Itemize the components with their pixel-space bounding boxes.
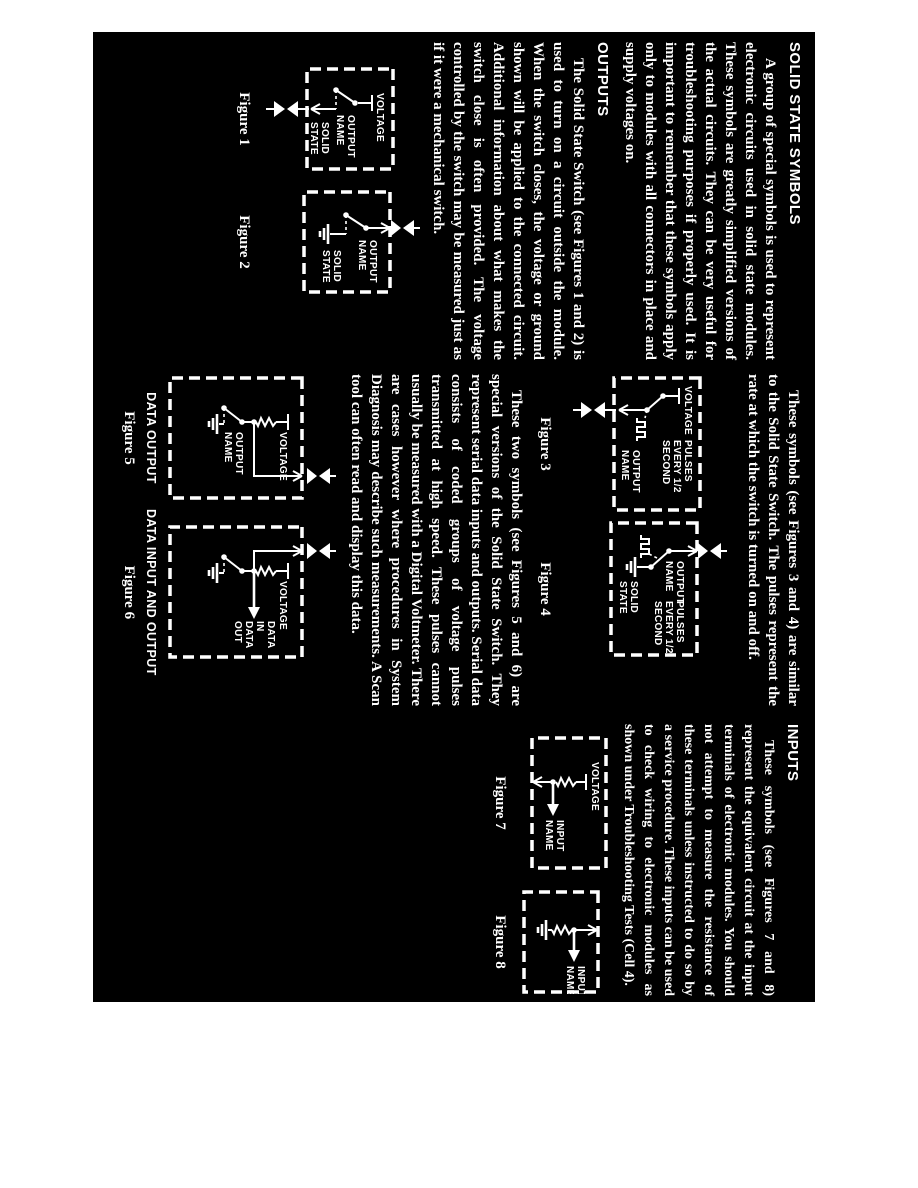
solid-state-label: SOLID [331, 250, 342, 282]
svg-text:IN: IN [254, 621, 265, 632]
output-name-label: OUTPUT [630, 450, 641, 493]
pulse-icon [641, 535, 657, 558]
voltage-label: VOLTAGE [682, 386, 693, 435]
svg-text:EVERY 1/2: EVERY 1/2 [663, 601, 674, 654]
connector-icon [698, 543, 727, 559]
svg-text:SECOND: SECOND [660, 440, 671, 485]
svg-text:NAME: NAME [619, 450, 630, 481]
svg-text:EVERY 1/2: EVERY 1/2 [671, 440, 682, 493]
data-out-label: DATA [243, 621, 254, 649]
switch-icon [343, 212, 369, 234]
resistor-icon [256, 418, 276, 426]
ground-icon [320, 224, 328, 244]
connector-icon [307, 543, 336, 559]
data-arrow-icon [568, 930, 580, 962]
ground-icon [627, 557, 635, 577]
figure-3-caption: Figure 3 [536, 417, 553, 470]
figure-row-1-2: VOLTAGE [235, 67, 422, 360]
intro-paragraph: A group of special symbols is used to re… [620, 42, 780, 360]
outputs-heading: OUTPUTS [594, 42, 611, 360]
figure-5-caption: Figure 5 [120, 411, 137, 464]
figure-5: VOLTAGE [120, 376, 338, 500]
column-1: SOLID STATE SYMBOLS A group of special s… [235, 42, 803, 360]
switch-icon [221, 405, 245, 425]
ground-icon [209, 414, 224, 434]
svg-text:NAME: NAME [356, 240, 367, 271]
voltage-terminal-icon [276, 414, 288, 430]
voltage-terminal-icon [276, 563, 288, 579]
voltage-label: VOLTAGE [277, 432, 288, 481]
figure-6-title: DATA INPUT AND OUTPUT [144, 509, 158, 676]
resistor-icon [552, 926, 572, 934]
voltage-terminal-icon [576, 774, 586, 790]
pulses-label: PULSES [674, 601, 685, 643]
voltage-terminal-icon [660, 388, 679, 404]
data-arrow-icon [248, 571, 260, 619]
input-name-label: INPUT [575, 966, 586, 994]
svg-text:STATE: STATE [308, 122, 319, 155]
figure-5-title: DATA OUTPUT [144, 392, 158, 484]
outputs-paragraph: The Solid State Switch (see Figures 1 an… [428, 42, 588, 360]
figure-2-diagram: OUTPUT NAME SOLID STATE [260, 190, 422, 294]
input-name-label: INPUT [554, 820, 565, 852]
voltage-label: VOLTAGE [277, 581, 288, 630]
figure-8-caption: Figure 8 [491, 915, 508, 968]
figure-7-caption: Figure 7 [491, 776, 508, 829]
figure-4: OUTPUT NAME PULSES EVERY 1/2 SECOND [536, 521, 729, 657]
figure-4-diagram: OUTPUT NAME PULSES EVERY 1/2 SECOND [561, 521, 729, 657]
connector-icon [266, 101, 309, 117]
page-title: SOLID STATE SYMBOLS [786, 42, 803, 360]
switch-icon [221, 555, 245, 575]
output-name-label: OUTPUT [345, 115, 356, 158]
svg-text:SECOND: SECOND [652, 601, 663, 646]
connector-icon [573, 402, 616, 418]
figure-1-diagram: VOLTAGE [260, 67, 422, 171]
figure-row-5-6: VOLTAGE [120, 376, 338, 706]
rotated-content: SOLID STATE SYMBOLS A group of special s… [93, 32, 815, 1002]
module-box [524, 892, 598, 992]
figure-8-diagram: INPUT NAME [516, 890, 608, 994]
solid-state-label: SOLID [628, 581, 639, 613]
voltage-terminal-icon [352, 95, 372, 111]
switch-icon [333, 87, 355, 109]
figure-2: OUTPUT NAME SOLID STATE Figure 2 [235, 190, 422, 294]
output-name-label: OUTPUT [367, 240, 378, 283]
output-name-label: OUTPUT [674, 561, 685, 604]
data-in-label: DATA [265, 621, 276, 649]
figure-7-diagram: VOLTAGE [516, 736, 608, 870]
figure-5-diagram: VOLTAGE [166, 376, 338, 500]
svg-text:NAME: NAME [222, 432, 233, 463]
serial-data-paragraph: These two symbols (see Figures 5 and 6) … [346, 374, 526, 706]
figure-4-caption: Figure 4 [536, 562, 553, 615]
svg-text:NAME: NAME [543, 820, 554, 851]
svg-text:OUT: OUT [232, 621, 243, 643]
figure-row-3-4: VOLTAGE PULSES EVERY 1/2 SECOND [536, 376, 729, 706]
svg-text:NAME: NAME [564, 966, 575, 994]
output-name-label: OUTPUT [233, 432, 244, 475]
voltage-label: VOLTAGE [374, 93, 385, 142]
pulses-label: PULSES [682, 440, 693, 482]
pulse-icon [637, 410, 647, 441]
connector-icon [307, 468, 336, 484]
inputs-paragraph: These symbols (see Figures 7 and 8) repr… [618, 724, 778, 996]
solid-state-label: SOLID [319, 122, 330, 154]
figure-8: INPUT NAME Figure 8 [491, 890, 608, 994]
figure-7: VOLTAGE [491, 736, 608, 870]
figure-1-caption: Figure 1 [235, 92, 252, 145]
figure-6-caption: Figure 6 [120, 566, 137, 619]
resistor-icon [256, 567, 276, 575]
figure-2-caption: Figure 2 [235, 215, 252, 268]
resistor-icon [556, 778, 576, 786]
ground-icon [209, 563, 224, 583]
figure-6: VOLTAGE DATA IN DATA OUT [120, 509, 338, 676]
column-3: INPUTS These symbols (see Figures 7 and … [491, 724, 801, 996]
inputs-heading: INPUTS [784, 724, 801, 996]
voltage-label: VOLTAGE [589, 762, 600, 811]
pulses-paragraph: These symbols (see Figures 3 and 4) are … [743, 374, 803, 706]
ground-icon [538, 920, 552, 940]
column-2: These symbols (see Figures 3 and 4) are … [120, 374, 803, 706]
scanned-page: SOLID STATE SYMBOLS A group of special s… [0, 0, 918, 1188]
svg-text:STATE: STATE [320, 250, 331, 283]
scan-black-area: SOLID STATE SYMBOLS A group of special s… [93, 32, 815, 1002]
figure-3: VOLTAGE PULSES EVERY 1/2 SECOND [536, 376, 729, 512]
svg-text:NAME: NAME [663, 561, 674, 592]
svg-text:NAME: NAME [334, 115, 345, 146]
figure-3-diagram: VOLTAGE PULSES EVERY 1/2 SECOND [561, 376, 729, 512]
figure-1: VOLTAGE [235, 67, 422, 171]
figure-row-7-8: VOLTAGE [491, 736, 608, 996]
figure-6-diagram: VOLTAGE DATA IN DATA OUT [166, 525, 338, 659]
svg-text:STATE: STATE [617, 581, 628, 614]
data-arrow-icon [547, 782, 559, 816]
connector-icon [391, 220, 420, 236]
